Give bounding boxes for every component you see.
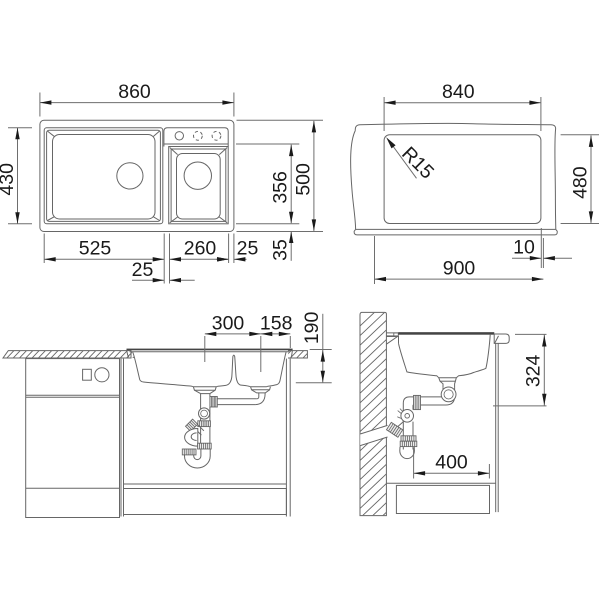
svg-text:25: 25 xyxy=(237,238,259,260)
svg-text:158: 158 xyxy=(260,312,293,334)
svg-text:324: 324 xyxy=(523,354,545,387)
svg-text:480: 480 xyxy=(569,166,591,199)
svg-text:860: 860 xyxy=(118,81,151,103)
svg-text:25: 25 xyxy=(132,259,154,281)
svg-text:300: 300 xyxy=(212,312,245,334)
svg-text:430: 430 xyxy=(0,163,18,196)
svg-text:190: 190 xyxy=(301,311,323,344)
svg-text:10: 10 xyxy=(513,237,535,259)
svg-text:35: 35 xyxy=(270,239,292,261)
svg-text:356: 356 xyxy=(270,171,292,204)
svg-text:525: 525 xyxy=(79,238,112,260)
svg-text:400: 400 xyxy=(435,452,468,474)
svg-text:900: 900 xyxy=(443,258,476,280)
svg-text:500: 500 xyxy=(292,163,314,196)
svg-text:260: 260 xyxy=(184,238,217,260)
svg-text:840: 840 xyxy=(442,81,475,103)
